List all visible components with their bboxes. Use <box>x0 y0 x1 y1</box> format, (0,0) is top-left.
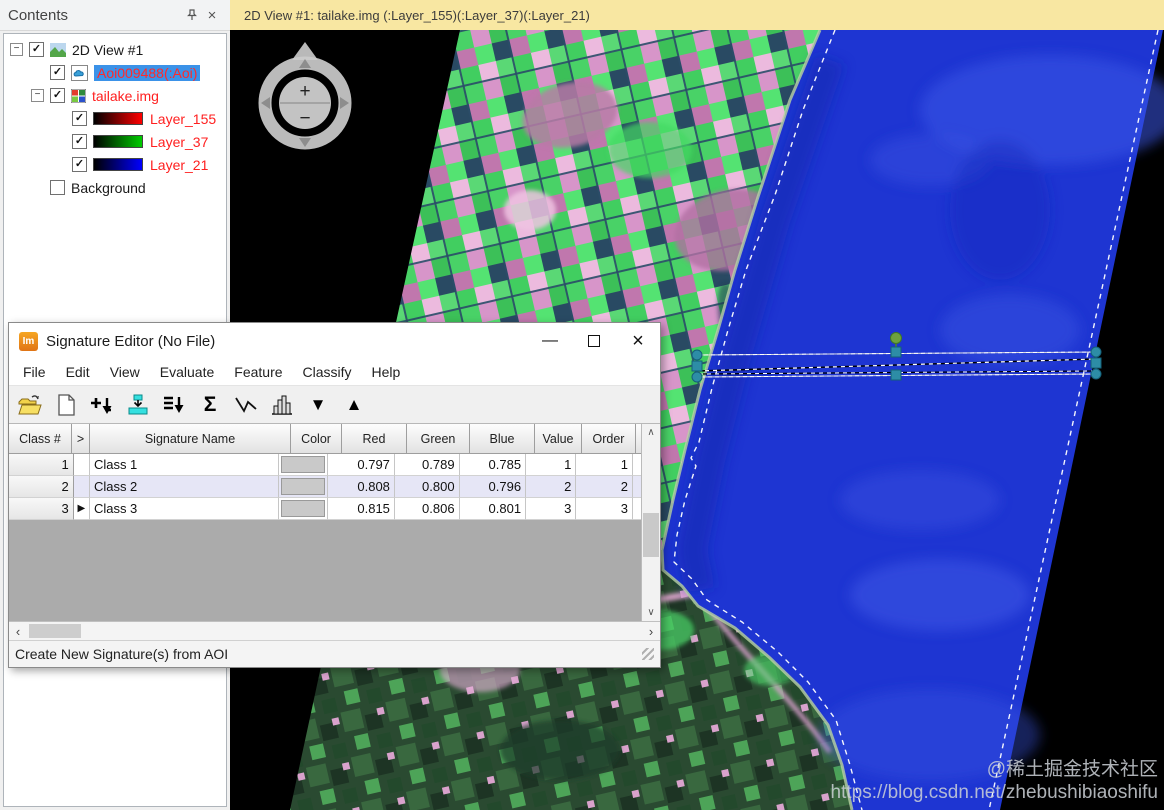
imagine-logo-icon: Im <box>19 332 38 351</box>
row-number[interactable]: 3 <box>9 498 74 520</box>
col-class-num[interactable]: Class # <box>9 424 72 454</box>
red-ramp-icon <box>93 112 143 125</box>
vertical-scroll-thumb[interactable] <box>643 513 659 557</box>
viewer-titlebar[interactable]: 2D View #1: tailake.img (:Layer_155)(:La… <box>230 0 1164 31</box>
tree-item-tailake[interactable]: − ✓ tailake.img <box>4 84 226 107</box>
col-green[interactable]: Green <box>407 424 470 454</box>
col-order[interactable]: Order <box>582 424 636 454</box>
tree-label-tailake[interactable]: tailake.img <box>92 88 159 104</box>
cell-color[interactable] <box>279 498 329 520</box>
col-signature-name[interactable]: Signature Name <box>90 424 291 454</box>
add-signature-icon[interactable] <box>87 391 117 419</box>
menu-feature[interactable]: Feature <box>224 364 292 380</box>
cell-blue[interactable]: 0.785 <box>460 454 526 476</box>
col-red[interactable]: Red <box>342 424 407 454</box>
color-swatch <box>281 456 326 473</box>
col-blue[interactable]: Blue <box>470 424 535 454</box>
zoom-out-button[interactable]: − <box>299 108 310 129</box>
maximize-button[interactable] <box>572 323 616 359</box>
minimize-button[interactable]: — <box>528 323 572 359</box>
vertical-scroll-track[interactable] <box>642 441 660 604</box>
zoom-in-button[interactable]: + <box>299 81 310 102</box>
cell-green[interactable]: 0.806 <box>395 498 460 520</box>
tree-label-background[interactable]: Background <box>71 180 146 196</box>
tree-label-layer21[interactable]: Layer_21 <box>150 157 208 173</box>
cell-value[interactable]: 1 <box>526 454 576 476</box>
raster-image-icon <box>71 89 86 103</box>
scroll-down-icon[interactable]: ∨ <box>642 604 660 621</box>
cell-name[interactable]: Class 1 <box>90 454 279 476</box>
tree-item-background[interactable]: Background <box>4 176 226 199</box>
replace-signature-icon[interactable] <box>159 391 189 419</box>
col-value[interactable]: Value <box>535 424 582 454</box>
menu-view[interactable]: View <box>100 364 150 380</box>
dialog-title: Signature Editor (No File) <box>46 333 528 350</box>
cell-red[interactable]: 0.797 <box>328 454 394 476</box>
dialog-statusbar: Create New Signature(s) from AOI <box>9 640 660 667</box>
status-text: Create New Signature(s) from AOI <box>15 646 228 662</box>
cell-red[interactable]: 0.815 <box>328 498 394 520</box>
tree-item-layer21[interactable]: ✓ Layer_21 <box>4 153 226 176</box>
tree-label-layer155[interactable]: Layer_155 <box>150 111 216 127</box>
cell-green[interactable]: 0.800 <box>395 476 460 498</box>
checkbox-layer155[interactable]: ✓ <box>72 111 87 126</box>
cell-name[interactable]: Class 2 <box>90 476 279 498</box>
col-marker[interactable]: > <box>72 424 90 454</box>
current-row-marker: ▶ <box>74 498 90 520</box>
row-number[interactable]: 1 <box>9 454 74 476</box>
green-ramp-icon <box>93 135 143 148</box>
tree-item-2d-view[interactable]: − ✓ 2D View #1 <box>4 38 226 61</box>
table-empty-area <box>9 520 641 621</box>
dialog-toolbar: Σ ▼ ▲ <box>9 386 660 423</box>
scroll-right-icon[interactable]: › <box>642 624 660 639</box>
row-marker <box>74 476 90 498</box>
profile-polyline-icon[interactable] <box>231 391 261 419</box>
move-up-icon[interactable]: ▲ <box>339 391 369 419</box>
cell-green[interactable]: 0.789 <box>395 454 460 476</box>
cell-blue[interactable]: 0.801 <box>460 498 526 520</box>
contents-panel-title: Contents <box>8 7 182 24</box>
cell-order[interactable]: 1 <box>576 454 633 476</box>
table-header-row: Class # > Signature Name Color Red Green… <box>9 424 641 454</box>
dialog-menubar: File Edit View Evaluate Feature Classify… <box>9 359 660 386</box>
pin-icon[interactable] <box>182 5 202 25</box>
tree-label-2d-view[interactable]: 2D View #1 <box>72 42 143 58</box>
statistics-sigma-icon[interactable]: Σ <box>195 391 225 419</box>
cell-name[interactable]: Class 3 <box>90 498 279 520</box>
tree-item-layer37[interactable]: ✓ Layer_37 <box>4 130 226 153</box>
signature-editor-dialog: Im Signature Editor (No File) — × File E… <box>8 322 661 668</box>
horizontal-scroll-thumb[interactable] <box>29 624 81 638</box>
checkbox-background[interactable] <box>50 180 65 195</box>
menu-edit[interactable]: Edit <box>56 364 100 380</box>
cell-order[interactable]: 3 <box>576 498 633 520</box>
maximize-icon <box>588 335 600 347</box>
open-folder-icon[interactable] <box>15 391 45 419</box>
color-swatch <box>281 500 326 517</box>
menu-help[interactable]: Help <box>362 364 411 380</box>
checkbox-layer37[interactable]: ✓ <box>72 134 87 149</box>
blue-ramp-icon <box>93 158 143 171</box>
vertical-scrollbar[interactable]: ∧ ∨ <box>641 424 660 621</box>
cell-color[interactable] <box>279 454 329 476</box>
contents-header: Contents × <box>0 0 230 31</box>
color-swatch <box>281 478 326 495</box>
close-panel-icon[interactable]: × <box>202 5 222 25</box>
collapse-icon[interactable]: − <box>10 43 23 56</box>
table-row[interactable]: 2 Class 2 0.808 0.800 0.796 2 2 <box>9 476 641 498</box>
row-marker <box>74 454 90 476</box>
checkbox-tailake[interactable]: ✓ <box>50 88 65 103</box>
tree-label-layer37[interactable]: Layer_37 <box>150 134 208 150</box>
cell-red[interactable]: 0.808 <box>328 476 394 498</box>
tree-item-layer155[interactable]: ✓ Layer_155 <box>4 107 226 130</box>
cell-value[interactable]: 3 <box>526 498 576 520</box>
menu-classify[interactable]: Classify <box>293 364 362 380</box>
collapse-icon[interactable]: − <box>31 89 44 102</box>
tree-item-aoi[interactable]: ✓ Aoi009488(:Aoi) <box>4 61 226 84</box>
signature-table: Class # > Signature Name Color Red Green… <box>9 423 660 621</box>
aoi-icon <box>71 65 88 81</box>
scroll-up-icon[interactable]: ∧ <box>642 424 660 441</box>
table-row[interactable]: 1 Class 1 0.797 0.789 0.785 1 1 <box>9 454 641 476</box>
checkbox-aoi[interactable]: ✓ <box>50 65 65 80</box>
close-button[interactable]: × <box>616 323 660 359</box>
cell-order[interactable]: 2 <box>576 476 633 498</box>
menu-evaluate[interactable]: Evaluate <box>150 364 224 380</box>
compass-widget[interactable]: + − <box>261 42 349 147</box>
rotate-handle[interactable] <box>891 333 902 344</box>
erdas-imagine-app: 2D View #1: tailake.img (:Layer_155)(:La… <box>0 0 1164 810</box>
horizontal-scrollbar[interactable]: ‹ › <box>9 621 660 640</box>
row-number[interactable]: 2 <box>9 476 74 498</box>
menu-file[interactable]: File <box>13 364 56 380</box>
2d-view-icon <box>50 43 66 57</box>
scroll-left-icon[interactable]: ‹ <box>9 624 27 639</box>
tree-label-aoi[interactable]: Aoi009488(:Aoi) <box>94 65 200 81</box>
col-color[interactable]: Color <box>291 424 342 454</box>
move-down-icon[interactable]: ▼ <box>303 391 333 419</box>
histogram-icon[interactable] <box>267 391 297 419</box>
viewer-title-text: 2D View #1: tailake.img (:Layer_155)(:La… <box>244 8 590 23</box>
cell-blue[interactable]: 0.796 <box>460 476 526 498</box>
checkbox-2d-view[interactable]: ✓ <box>29 42 44 57</box>
resize-grip[interactable] <box>642 648 654 660</box>
dialog-titlebar[interactable]: Im Signature Editor (No File) — × <box>9 323 660 359</box>
horizontal-scroll-track[interactable] <box>27 622 642 640</box>
new-document-icon[interactable] <box>51 391 81 419</box>
cell-value[interactable]: 2 <box>526 476 576 498</box>
cell-color[interactable] <box>279 476 329 498</box>
checkbox-layer21[interactable]: ✓ <box>72 157 87 172</box>
merge-signatures-icon[interactable] <box>123 391 153 419</box>
table-row[interactable]: 3 ▶ Class 3 0.815 0.806 0.801 3 3 <box>9 498 641 520</box>
